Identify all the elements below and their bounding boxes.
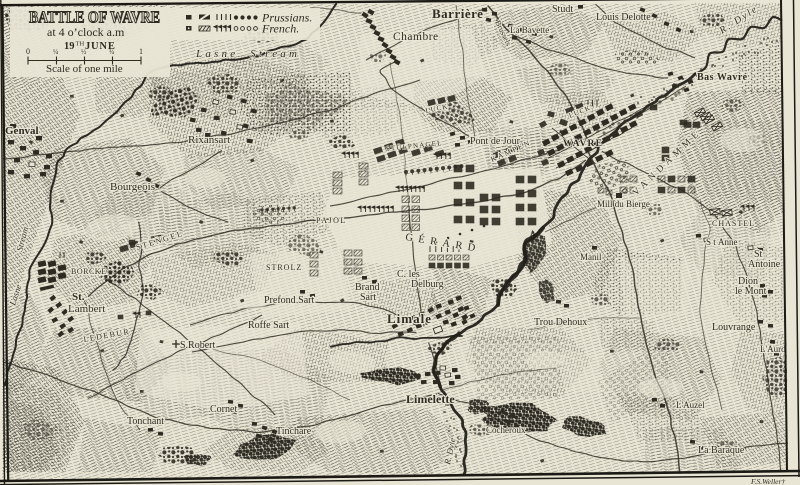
svg-text:0: 0	[26, 47, 30, 56]
svg-text:Tonchant: Tonchant	[127, 416, 164, 427]
svg-text:Barrière: Barrière	[432, 6, 483, 21]
svg-text:¼: ¼	[53, 48, 58, 56]
svg-text:Genval: Genval	[5, 125, 39, 137]
svg-text:L'Auzel: L'Auzel	[676, 400, 705, 410]
svg-text:Delburg: Delburg	[411, 279, 444, 290]
svg-text:Mill du Bierge: Mill du Bierge	[597, 199, 650, 209]
svg-text:CHASTEL: CHASTEL	[712, 219, 755, 228]
svg-text:½: ½	[81, 48, 86, 56]
svg-text:le Mont: le Mont	[735, 286, 767, 297]
svg-text:BORCKE: BORCKE	[71, 267, 106, 276]
svg-text:Pont de Jour: Pont de Jour	[470, 136, 521, 147]
svg-text:Roffe Sart: Roffe Sart	[248, 320, 289, 331]
svg-text:19: 19	[64, 41, 75, 52]
svg-text:S.Robert: S.Robert	[180, 340, 216, 351]
svg-text:Limelette: Limelette	[406, 392, 455, 406]
svg-text:La Baraque: La Baraque	[698, 445, 745, 456]
svg-text:Antoine: Antoine	[748, 259, 781, 270]
svg-text:Louvrange: Louvrange	[712, 322, 756, 333]
svg-text:BATTLE OF WAVRE: BATTLE OF WAVRE	[29, 8, 160, 27]
svg-text:F.S.Weller†: F.S.Weller†	[750, 477, 785, 485]
svg-text:STROLZ: STROLZ	[266, 263, 302, 272]
svg-text:L'Aurd: L'Aurd	[760, 344, 786, 354]
svg-text:Studt: Studt	[552, 4, 573, 15]
svg-text:Cornet: Cornet	[210, 404, 237, 415]
svg-text:S t Anne: S t Anne	[706, 237, 738, 247]
svg-text:Louis Delotte: Louis Delotte	[596, 12, 651, 23]
svg-text:Sart: Sart	[360, 292, 376, 303]
svg-text:at 4 o’clock a.m: at 4 o’clock a.m	[47, 25, 125, 39]
svg-text:Bourgeois: Bourgeois	[110, 181, 155, 193]
svg-text:Scale of one mile: Scale of one mile	[46, 63, 123, 75]
svg-text:PAJOL: PAJOL	[316, 216, 347, 225]
svg-text:Cocheroux: Cocheroux	[486, 425, 526, 435]
svg-text:Prefond Sart: Prefond Sart	[264, 295, 314, 306]
svg-text:TH: TH	[76, 41, 85, 48]
svg-text:Limale: Limale	[387, 311, 432, 326]
svg-text:Manil: Manil	[580, 252, 602, 262]
svg-text:St.: St.	[72, 291, 85, 303]
svg-text:¾: ¾	[109, 48, 114, 56]
svg-text:Lambert: Lambert	[68, 303, 105, 315]
svg-text:WAVRE: WAVRE	[563, 139, 603, 149]
svg-text:Bas Wavre: Bas Wavre	[697, 72, 748, 83]
svg-text:Trou Dehoux: Trou Dehoux	[534, 317, 587, 328]
svg-text:Chambre: Chambre	[393, 31, 439, 43]
svg-text:Rixansart: Rixansart	[188, 134, 230, 146]
svg-text:Lasne Stream: Lasne Stream	[195, 48, 300, 60]
svg-text:Tinchare: Tinchare	[276, 426, 312, 437]
svg-text:La Bavette: La Bavette	[510, 25, 549, 35]
svg-text:French.: French.	[261, 22, 299, 36]
svg-text:1: 1	[139, 47, 143, 56]
